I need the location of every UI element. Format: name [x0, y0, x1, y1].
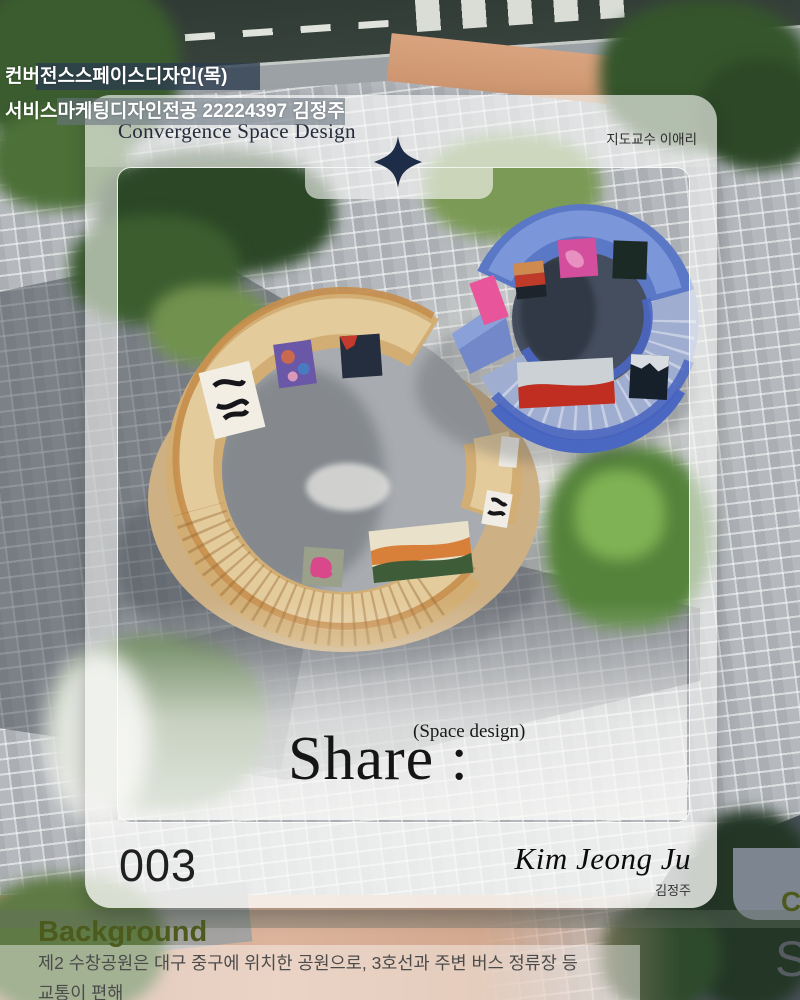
section-heading: Background — [38, 916, 207, 949]
student-info-line: 서비스마케팅디자인전공 22224397 김정주 — [5, 98, 345, 125]
author-name-ko: 김정주 — [515, 880, 691, 899]
sparkle-icon — [374, 136, 422, 188]
crosswalk-stripes — [413, 0, 636, 32]
section-body: 제2 수창공원은 대구 중구에 위치한 공원으로, 3호선과 주변 버스 정류장… — [38, 948, 598, 1000]
section-body-line1: 제2 수창공원은 대구 중구에 위치한 공원으로, 3호선과 주변 버스 정류장… — [38, 953, 578, 1000]
cropped-letter-s: S — [775, 930, 800, 988]
author-block: Kim Jeong Ju 김정주 — [515, 841, 691, 899]
portfolio-page: Convergence Space Design 지도교수 이애리 (Space… — [0, 0, 800, 1000]
advisor-label: 지도교수 이애리 — [606, 128, 697, 148]
cropped-letter-c: C — [781, 886, 800, 918]
author-name-en: Kim Jeong Ju — [515, 841, 691, 877]
course-title-line: 컨버전스스페이스디자인(목) — [5, 63, 227, 90]
share-title: Share : — [288, 728, 469, 790]
page-number: 003 — [119, 840, 197, 892]
project-card: Convergence Space Design 지도교수 이애리 (Space… — [85, 95, 717, 908]
